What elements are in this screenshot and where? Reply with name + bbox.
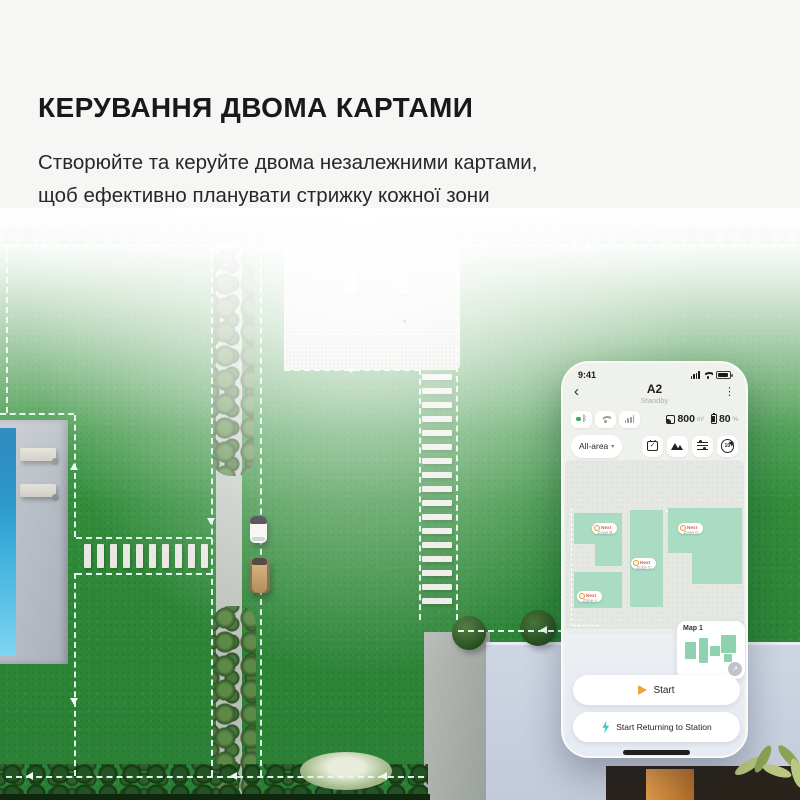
- mini-map-zone: [710, 646, 720, 656]
- mound-icon: [671, 442, 684, 450]
- lawn-map[interactable]: Next Zone B Next Zone A Next Zone C Next…: [565, 460, 744, 634]
- boundary-bottom: [6, 776, 424, 778]
- boundary-ladder-left: [419, 369, 421, 620]
- terrain-button[interactable]: [667, 436, 688, 457]
- battery-level-icon: [711, 414, 717, 424]
- stepping-stone: [422, 416, 452, 422]
- stepping-stone: [162, 544, 169, 568]
- status-icons: [691, 371, 731, 379]
- zone-label: Zone C: [636, 566, 651, 571]
- boundary-arrow: [230, 772, 237, 780]
- zone-badge[interactable]: Next Zone A: [577, 586, 602, 604]
- boundary-pool-top: [0, 413, 74, 415]
- cellular-signal-icon: [691, 371, 700, 379]
- area-value: 800: [677, 413, 695, 425]
- map-switch-card[interactable]: Map 1 ↗: [677, 621, 745, 679]
- zone-badge[interactable]: Next Zone B: [592, 518, 617, 536]
- map-dashed-line: [573, 625, 599, 626]
- stepping-stone: [422, 514, 452, 520]
- zone-badge[interactable]: Next Zone D: [678, 518, 703, 536]
- garden-chair: [344, 270, 357, 294]
- stepping-stone: [136, 544, 143, 568]
- play-icon: [638, 685, 647, 695]
- diving-board: [20, 484, 56, 497]
- stepping-stone: [422, 584, 452, 590]
- stepping-stone: [422, 556, 452, 562]
- boundary-left: [6, 247, 8, 413]
- device-status: Standby: [563, 396, 746, 405]
- toolbar-buttons: ✓ 10: [642, 436, 738, 457]
- rotate-icon: 10: [721, 439, 735, 453]
- settings-button[interactable]: [692, 436, 713, 457]
- battery-value: 80: [719, 413, 731, 425]
- boundary-arrow: [540, 626, 547, 634]
- battery-unit: %: [733, 417, 738, 423]
- boundary-ladder-right: [456, 247, 458, 620]
- boundary-pool-right: [74, 415, 76, 537]
- zone-selector-dropdown[interactable]: All-area ▾: [571, 435, 622, 458]
- stepping-stone: [422, 486, 452, 492]
- map-card-label: Map 1: [683, 625, 703, 632]
- robot-mower-white: [250, 516, 267, 543]
- bluetooth-chip: ᛒ: [571, 411, 592, 428]
- round-bush: [452, 616, 486, 650]
- return-to-station-button[interactable]: Start Returning to Station: [573, 712, 740, 742]
- boundary-crosswalk-bottom: [76, 573, 212, 575]
- stepping-stone: [422, 472, 452, 478]
- hedge-row: [212, 248, 254, 476]
- status-time: 9:41: [578, 370, 596, 380]
- boundary-arrow: [26, 772, 33, 780]
- bird: [403, 320, 406, 323]
- kebab-menu-icon[interactable]: ⋮: [724, 385, 735, 398]
- boundary-right-bottom: [458, 630, 564, 632]
- hedge-shadow: [0, 794, 430, 800]
- schedule-button[interactable]: ✓: [642, 436, 663, 457]
- mini-map-zone: [724, 654, 732, 662]
- stepping-stone: [175, 544, 182, 568]
- area-stat: 800 m²: [666, 413, 704, 425]
- app-header: ‹ A2 Standby ⋮: [563, 382, 746, 408]
- area-icon: [666, 415, 675, 424]
- boundary-pool-right-lower: [74, 573, 76, 776]
- boundary-arrow: [350, 365, 357, 373]
- page-subtitle: Створюйте та керуйте двома незалежними к…: [38, 146, 537, 212]
- cellular-chip: [619, 411, 640, 428]
- garden-bench: [340, 252, 404, 269]
- stepping-stone: [422, 570, 452, 576]
- page-title: КЕРУВАННЯ ДВОМА КАРТАМИ: [38, 92, 473, 124]
- expand-map-button[interactable]: ↗: [728, 662, 742, 676]
- device-name: A2: [563, 382, 746, 396]
- cellular-signal-icon: [625, 415, 634, 423]
- start-label: Start: [653, 685, 674, 696]
- garden-chair: [396, 270, 409, 294]
- mini-map-zone: [685, 642, 696, 659]
- subtitle-line-1: Створюйте та керуйте двома незалежними к…: [38, 146, 537, 179]
- hedge-top: [0, 224, 800, 244]
- zone-label: Zone D: [683, 531, 698, 536]
- zone-badge[interactable]: Next Zone C: [631, 553, 656, 571]
- light-bush: [300, 752, 392, 790]
- bluetooth-icon: ᛒ: [582, 415, 587, 423]
- doorway-glow: [646, 769, 694, 800]
- area-unit: m²: [697, 417, 704, 423]
- stepping-stone: [97, 544, 104, 568]
- calendar-check-icon: ✓: [647, 441, 658, 451]
- lightning-icon: [601, 721, 610, 734]
- robot-mower-bronze: [249, 558, 270, 593]
- zone-label: Zone B: [597, 531, 612, 536]
- boundary-path-left: [211, 247, 213, 776]
- device-stats: 800 m² 80 %: [666, 413, 738, 425]
- map-dashed-line: [571, 508, 572, 626]
- map-toolbar: All-area ▾ ✓ 10: [571, 434, 738, 458]
- home-indicator: [623, 750, 690, 755]
- stepping-stone: [422, 374, 452, 380]
- connectivity-row: ᛒ 800 m² 80 %: [571, 410, 738, 428]
- diving-board: [20, 448, 56, 461]
- wifi-icon: [703, 371, 713, 379]
- boundary-top: [4, 245, 796, 247]
- boundary-arrow: [70, 698, 78, 705]
- status-bar: 9:41: [563, 368, 746, 382]
- stepping-stones-crosswalk: [84, 544, 216, 568]
- stepping-stone: [422, 598, 452, 604]
- stepping-stone: [149, 544, 156, 568]
- stepping-stone: [422, 388, 452, 394]
- map-zone-d-ext[interactable]: [692, 553, 742, 584]
- wifi-icon: [601, 415, 611, 423]
- map-zone-b-ext[interactable]: [595, 544, 622, 566]
- stepping-stone: [422, 402, 452, 408]
- boundary-arrow: [42, 241, 49, 249]
- battery-icon: [716, 371, 731, 379]
- boundary-arrow: [70, 463, 78, 470]
- battery-stat: 80 %: [711, 413, 738, 425]
- boundary-gravel-left: [284, 247, 286, 369]
- mini-map-zone: [699, 638, 708, 663]
- boundary-arrow: [354, 241, 361, 249]
- boundary-arrow: [380, 772, 387, 780]
- connected-dot: [576, 417, 581, 422]
- stepping-stones-path: [422, 374, 452, 620]
- stepping-stone: [422, 458, 452, 464]
- boundary-arrow: [207, 518, 215, 525]
- stepping-stone: [84, 544, 91, 568]
- stepping-stone: [422, 430, 452, 436]
- zone-label: Zone A: [582, 599, 597, 604]
- return-label: Start Returning to Station: [616, 722, 711, 732]
- boundary-crosswalk-top: [76, 537, 212, 539]
- zone-selector-label: All-area: [579, 441, 608, 451]
- stepping-stone: [422, 444, 452, 450]
- stepping-stone: [110, 544, 117, 568]
- chevron-down-icon: ▾: [611, 443, 614, 450]
- phone-mockup: 9:41 ‹ A2 Standby ⋮ ᛒ: [561, 361, 748, 758]
- round-bush: [520, 610, 556, 646]
- expand-icon: ↗: [732, 666, 738, 673]
- stepping-stone: [188, 544, 195, 568]
- pool-water: [0, 428, 16, 656]
- boundary-path-right: [260, 247, 262, 776]
- sliders-icon: [697, 441, 708, 451]
- stepping-stone: [422, 542, 452, 548]
- boundary-arrow: [586, 241, 593, 249]
- stepping-stone: [201, 544, 208, 568]
- stepping-stone: [422, 500, 452, 506]
- connectivity-chips: ᛒ: [571, 411, 640, 428]
- wifi-chip: [595, 411, 616, 428]
- promo-page: КЕРУВАННЯ ДВОМА КАРТАМИ Створюйте та кер…: [0, 0, 800, 800]
- spiral-mode-button[interactable]: 10: [717, 436, 738, 457]
- concrete-path: [424, 632, 490, 800]
- stepping-stone: [123, 544, 130, 568]
- stepping-stone: [422, 528, 452, 534]
- start-button[interactable]: Start: [573, 675, 740, 705]
- mini-map-zone: [721, 635, 736, 653]
